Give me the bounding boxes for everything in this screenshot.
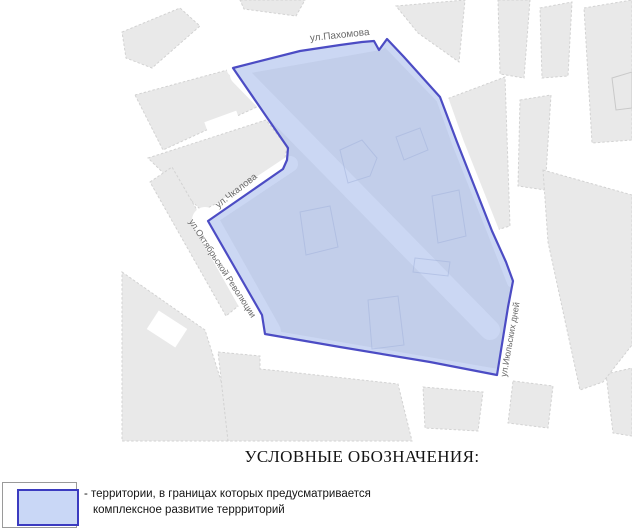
city-block	[218, 352, 412, 441]
legend-item-line1: - территории, в границах которых предусм…	[84, 487, 504, 503]
city-block	[543, 170, 632, 390]
city-block	[584, 0, 632, 143]
legend-swatch-fill	[17, 489, 79, 526]
city-block	[240, 0, 305, 16]
page: { "map": { "street_labels": [ { "name": …	[0, 0, 632, 530]
legend-swatch	[2, 482, 77, 528]
city-block	[498, 0, 530, 78]
legend-item-line2: комплексное развитие террриторий	[84, 503, 504, 519]
legend-item-label: - территории, в границах которых предусм…	[84, 487, 504, 518]
city-block	[606, 368, 632, 436]
city-block	[540, 2, 572, 78]
map-svg: ул.Пахомова ул.Чкалова ул.Октябрьской Ре…	[0, 0, 632, 445]
map-canvas: ул.Пахомова ул.Чкалова ул.Октябрьской Ре…	[0, 0, 632, 445]
city-block	[508, 381, 553, 428]
legend-title: УСЛОВНЫЕ ОБОЗНАЧЕНИЯ:	[222, 447, 502, 467]
city-block	[122, 8, 200, 68]
city-block	[423, 387, 483, 431]
